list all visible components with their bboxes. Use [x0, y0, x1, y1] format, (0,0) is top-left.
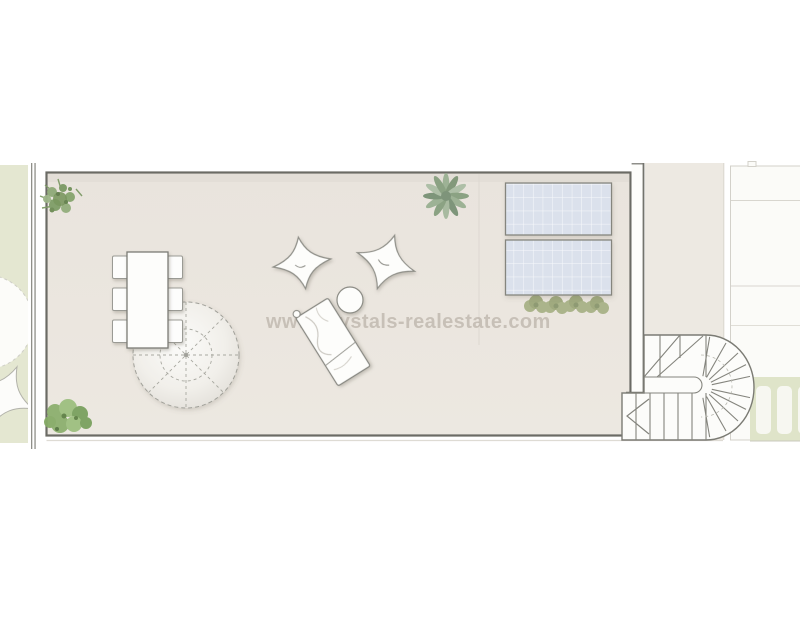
neighbor-parasol: [0, 275, 33, 369]
floor-plan-drawing: www.crystals-realestate.com: [0, 0, 800, 640]
solar-panel-1: [506, 183, 612, 235]
pergola-slat: [756, 386, 771, 434]
dining-chair: [113, 288, 128, 311]
floor-plan-canvas: www.crystals-realestate.com: [0, 0, 800, 640]
pergola-louvers: [750, 377, 800, 441]
dining-table: [127, 252, 168, 348]
boundary-wall-lines: [31, 163, 36, 449]
dining-chair: [168, 320, 183, 343]
solar-panel-2: [506, 240, 612, 295]
dining-chair: [113, 256, 128, 279]
pergola-slat: [777, 386, 792, 434]
left-garden-strip: [0, 165, 46, 443]
side-table: [337, 287, 363, 313]
dining-chair: [168, 256, 183, 279]
dining-chair: [113, 320, 128, 343]
dining-chair: [168, 288, 183, 311]
dining-set: [113, 252, 183, 348]
